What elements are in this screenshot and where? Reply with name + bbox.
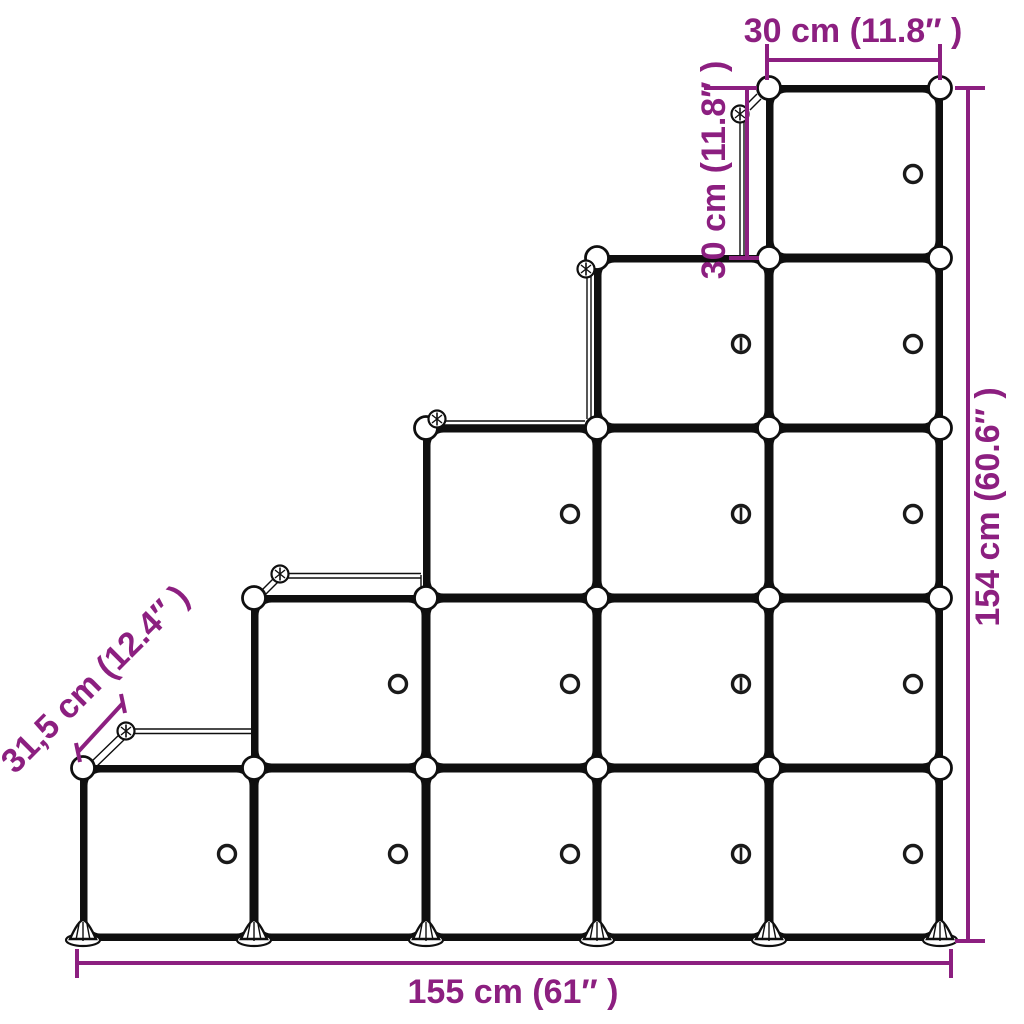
corner-ball-connector xyxy=(586,587,609,610)
door-knob xyxy=(562,676,579,693)
door-knob-ring xyxy=(219,846,236,863)
door-knob xyxy=(733,506,750,523)
dimension-cube-height: 30 cm (11.8″ ) xyxy=(695,61,759,280)
corner-ball-connector xyxy=(758,757,781,780)
door-knob xyxy=(905,336,922,353)
dim-label-cube-height: 30 cm (11.8″ ) xyxy=(695,61,733,280)
door-knob-ring xyxy=(905,846,922,863)
dim-label-depth: 31,5 cm (12.4″ ) xyxy=(0,578,197,781)
door-knob-ring xyxy=(562,506,579,523)
door-knob-ring xyxy=(562,676,579,693)
corner-ball-connector xyxy=(929,417,952,440)
door-knob-ring xyxy=(562,846,579,863)
depth-edge-line xyxy=(95,737,127,768)
dimension-total-width: 155 cm (61″ ) xyxy=(77,949,951,1011)
door-knob xyxy=(905,166,922,183)
dim-label-total-width: 155 cm (61″ ) xyxy=(408,973,619,1011)
cube-door-panels xyxy=(86,91,938,936)
corner-ball-connector xyxy=(929,757,952,780)
corner-ball-connector xyxy=(243,757,266,780)
door-knob-ring xyxy=(390,846,407,863)
door-knob xyxy=(733,676,750,693)
dimension-diagram-stage: 30 cm (11.8″ ) 30 cm (11.8″ ) 154 cm (60… xyxy=(0,0,1024,1024)
corner-ball-connector xyxy=(758,587,781,610)
dim-tick xyxy=(121,694,125,713)
rear-corner-ball xyxy=(272,566,289,583)
corner-ball-connector xyxy=(415,587,438,610)
corner-ball-connector xyxy=(929,247,952,270)
dimension-top-width: 30 cm (11.8″ ) xyxy=(744,12,963,80)
door-knob xyxy=(905,506,922,523)
door-knob xyxy=(733,846,750,863)
door-knob xyxy=(733,336,750,353)
door-knob-ring xyxy=(390,676,407,693)
door-knob xyxy=(562,846,579,863)
door-knob xyxy=(390,846,407,863)
corner-ball-connector xyxy=(72,757,95,780)
door-knob xyxy=(905,846,922,863)
rear-corner-ball xyxy=(578,261,595,278)
door-knob xyxy=(219,846,236,863)
door-knob xyxy=(905,676,922,693)
dim-label-top-width: 30 cm (11.8″ ) xyxy=(744,12,963,50)
corner-ball-connector xyxy=(415,757,438,780)
corner-ball-connector xyxy=(929,587,952,610)
corner-ball-connector xyxy=(586,417,609,440)
depth-edge-line xyxy=(750,99,761,110)
corner-ball-connector xyxy=(758,417,781,440)
door-knob xyxy=(390,676,407,693)
rear-corner-ball xyxy=(429,411,446,428)
door-knob-ring xyxy=(905,166,922,183)
rear-corner-ball xyxy=(118,723,135,740)
door-knob-ring xyxy=(905,506,922,523)
dimension-depth: 31,5 cm (12.4″ ) xyxy=(0,578,197,781)
corner-ball-connector xyxy=(586,757,609,780)
dim-label-total-height: 154 cm (60.6″ ) xyxy=(969,387,1007,626)
dimension-total-height: 154 cm (60.6″ ) xyxy=(955,88,1007,941)
door-knob-ring xyxy=(905,336,922,353)
corner-ball-connector xyxy=(758,247,781,270)
door-knob-ring xyxy=(905,676,922,693)
cube-storage-dimension-diagram: 30 cm (11.8″ ) 30 cm (11.8″ ) 154 cm (60… xyxy=(0,0,1024,1024)
door-knob xyxy=(562,506,579,523)
corner-ball-connector xyxy=(243,587,266,610)
